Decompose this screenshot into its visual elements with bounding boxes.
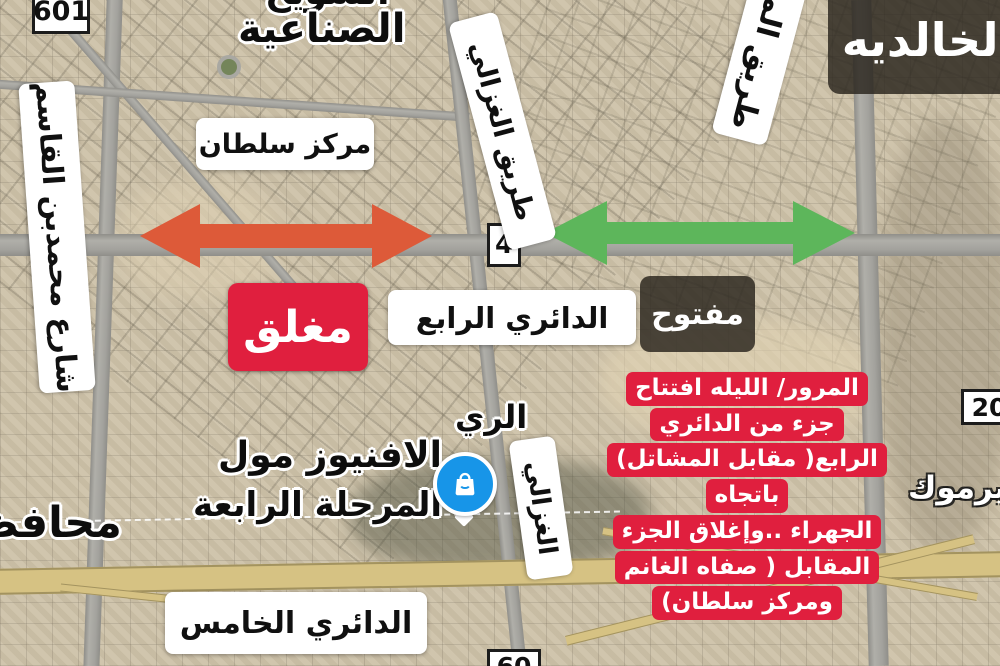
announcement-line: جزء من الدائري: [650, 408, 843, 442]
road-name: الدائري الرابع: [416, 301, 609, 335]
traffic-map-screenshot: 601 4 20 60 الخالديه الشويخ الصناعية مرك…: [0, 0, 1000, 666]
pin-disc: [433, 452, 497, 516]
announcement-line: ومركز سلطان): [652, 586, 842, 620]
road-name: شارع محمدبن القاسم: [29, 80, 85, 394]
status-closed-badge: مغلق: [228, 283, 368, 371]
route-number: 60: [497, 652, 532, 666]
closed-section-arrow: [138, 200, 434, 272]
route-number: 601: [33, 0, 89, 27]
announcement-line: باتجاه: [706, 479, 789, 513]
status-open-badge: مفتوح: [640, 276, 755, 352]
poi-label-avenues: الافنيوز مول المرحلة الرابعة: [228, 430, 442, 529]
poi-label-sultan-center: مركز سلطان: [196, 118, 374, 170]
road-label-fourth-ring: الدائري الرابع: [388, 290, 636, 345]
announcement-line: المرور/ الليله افتتاح: [626, 372, 868, 406]
announcement-line: المقابل ( صفاه الغانم: [615, 551, 880, 585]
status-text: مغلق: [243, 302, 353, 353]
avenues-map-pin: [433, 452, 497, 516]
announcement-line: الجهراء ..وإغلاق الجزء: [613, 515, 882, 549]
area-label-yarmouk: اليرموك: [908, 470, 1000, 506]
route-badge-601: 601: [32, 0, 90, 34]
poi-name-line2: المرحلة الرابعة: [228, 481, 442, 529]
route-badge-60: 60: [487, 649, 541, 666]
status-text: مفتوح: [651, 297, 744, 332]
road-name: الغزالي: [520, 459, 563, 557]
area-name: الخالديه: [842, 13, 1000, 67]
roundabout: [217, 55, 241, 79]
poi-name-line1: الافنيوز مول: [228, 430, 442, 481]
area-label-alrai: الري: [455, 398, 527, 436]
area-label-mohafaza-partial: محافظة: [0, 498, 122, 548]
shopping-bag-icon: [450, 469, 480, 499]
announcement-line: الرابع( مقابل المشاتل): [607, 443, 887, 477]
road-name: الدائري الخامس: [180, 606, 412, 641]
traffic-announcement: المرور/ الليله افتتاح جزء من الدائري الر…: [596, 372, 898, 620]
area-label-sinaiya: الصناعية: [238, 6, 405, 52]
route-badge-20: 20: [961, 389, 1000, 425]
route-number: 20: [972, 393, 1000, 422]
poi-name: مركز سلطان: [199, 129, 371, 160]
open-section-arrow: [543, 196, 857, 270]
road-label-fifth-ring: الدائري الخامس: [165, 592, 427, 654]
area-label-khaldiya: الخالديه: [828, 0, 1000, 94]
